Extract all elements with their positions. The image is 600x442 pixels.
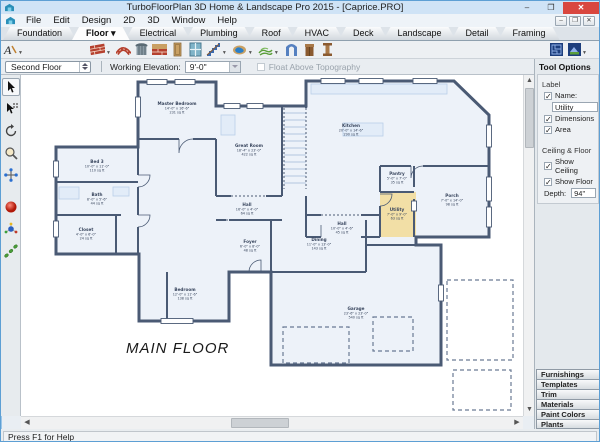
half-wall-icon[interactable] bbox=[151, 42, 169, 58]
minimize-button[interactable]: – bbox=[515, 2, 539, 14]
svg-text:143 sq ft: 143 sq ft bbox=[311, 247, 327, 251]
menu-bar: FileEditDesign2D3DWindowHelp – ❐ ✕ bbox=[1, 14, 599, 27]
status-text: Press F1 for Help bbox=[3, 431, 597, 442]
tab-hvac[interactable]: HVAC bbox=[291, 27, 343, 40]
name-label: Name: bbox=[555, 91, 577, 100]
svg-text:Foyer: Foyer bbox=[243, 239, 257, 244]
dimensions-label: Dimensions bbox=[555, 114, 594, 123]
elevation-view-icon[interactable] bbox=[565, 42, 583, 58]
select-special-icon[interactable] bbox=[2, 100, 20, 118]
menu-2d[interactable]: 2D bbox=[117, 14, 141, 27]
terrain-icon[interactable] bbox=[257, 42, 275, 58]
floor-selector[interactable]: Second Floor bbox=[5, 61, 91, 73]
svg-text:24 sq ft: 24 sq ft bbox=[80, 237, 94, 241]
menu-design[interactable]: Design bbox=[76, 14, 118, 27]
svg-text:Bath: Bath bbox=[91, 192, 102, 197]
tool-options-header: Tool Options bbox=[535, 59, 600, 74]
working-elevation-label: Working Elevation: bbox=[110, 62, 181, 72]
status-bar: Press F1 for Help bbox=[1, 429, 599, 442]
rotate-icon[interactable] bbox=[2, 122, 20, 140]
gazebo-icon[interactable] bbox=[133, 42, 151, 58]
tab-roof[interactable]: Roof bbox=[248, 27, 295, 40]
tab-bar: FoundationFloor ▾ElectricalPlumbingRoofH… bbox=[1, 27, 599, 41]
maximize-button[interactable]: ❐ bbox=[539, 2, 563, 14]
svg-text:290 sq ft: 290 sq ft bbox=[343, 133, 359, 137]
horizontal-scroll-thumb[interactable] bbox=[231, 418, 289, 428]
catalog-templates[interactable]: Templates bbox=[536, 379, 600, 389]
mdi-restore-button[interactable]: ❐ bbox=[569, 16, 581, 26]
show-ceiling-checkbox[interactable]: ✓ bbox=[544, 162, 552, 170]
floor-selector-value: Second Floor bbox=[11, 62, 62, 72]
tab-deck[interactable]: Deck bbox=[339, 27, 388, 40]
floor-toolbar: Second Floor Working Elevation: 9'-0" Fl… bbox=[1, 59, 599, 75]
name-checkbox[interactable]: ✓ bbox=[544, 92, 552, 100]
svg-text:Hall: Hall bbox=[242, 202, 252, 207]
cabinet-icon[interactable] bbox=[301, 42, 319, 58]
scroll-left-icon[interactable]: ◀ bbox=[21, 417, 33, 429]
horizontal-scrollbar[interactable]: ◀ ▶ bbox=[21, 416, 523, 429]
depth-input[interactable]: 94" bbox=[571, 188, 596, 198]
window-title: TurboFloorPlan 3D Home & Landscape Pro 2… bbox=[15, 2, 515, 13]
float-topography-checkbox[interactable] bbox=[257, 63, 265, 71]
show-floor-label: Show Floor bbox=[555, 177, 593, 186]
pool-icon[interactable] bbox=[231, 42, 249, 58]
svg-text:Pantry: Pantry bbox=[389, 171, 405, 176]
svg-text:231 sq ft: 231 sq ft bbox=[169, 111, 185, 115]
show-floor-checkbox[interactable]: ✓ bbox=[544, 178, 552, 186]
depth-label: Depth: bbox=[544, 189, 566, 198]
tab-detail[interactable]: Detail bbox=[452, 27, 503, 40]
svg-text:138 sq ft: 138 sq ft bbox=[177, 297, 193, 301]
catalog-materials[interactable]: Materials bbox=[536, 399, 600, 409]
svg-text:Kitchen: Kitchen bbox=[342, 123, 360, 128]
svg-text:48 sq ft: 48 sq ft bbox=[244, 249, 258, 253]
menu-file[interactable]: File bbox=[20, 14, 47, 27]
drawing-toolbar: A ▼ ▼ ▼ ▼ ▼ bbox=[1, 41, 599, 59]
area-checkbox[interactable]: ✓ bbox=[544, 126, 552, 134]
render-sphere-icon[interactable] bbox=[2, 198, 20, 216]
svg-text:Utility: Utility bbox=[390, 207, 405, 212]
elevation-dropdown-icon[interactable] bbox=[229, 62, 240, 72]
column-icon[interactable] bbox=[319, 42, 337, 58]
svg-text:Bed 3: Bed 3 bbox=[90, 159, 103, 164]
wall-icon[interactable] bbox=[89, 42, 107, 58]
floor-spinner[interactable] bbox=[79, 62, 90, 72]
show-ceiling-label: Show Ceiling bbox=[555, 157, 596, 175]
window-icon[interactable] bbox=[187, 42, 205, 58]
tab-floor[interactable]: Floor ▾ bbox=[72, 27, 130, 40]
arch-icon[interactable] bbox=[283, 42, 301, 58]
tab-framing[interactable]: Framing bbox=[499, 27, 560, 40]
floorplan-canvas[interactable]: Master Bedroom14'-0" x 16'-6"231 sq ftGr… bbox=[21, 75, 523, 416]
tab-electrical[interactable]: Electrical bbox=[126, 27, 191, 40]
svg-text:A: A bbox=[3, 43, 12, 57]
catalog-paint-colors[interactable]: Paint Colors bbox=[536, 409, 600, 419]
dimensions-checkbox[interactable]: ✓ bbox=[544, 115, 552, 123]
close-button[interactable]: ✕ bbox=[563, 2, 599, 14]
area-label: Area bbox=[555, 125, 571, 134]
name-input[interactable]: Utility bbox=[552, 102, 598, 112]
svg-text:422 sq ft: 422 sq ft bbox=[241, 153, 257, 157]
svg-text:Hall: Hall bbox=[337, 221, 347, 226]
svg-text:Dining: Dining bbox=[311, 237, 326, 242]
catalog-trim[interactable]: Trim bbox=[536, 389, 600, 399]
svg-text:45 sq ft: 45 sq ft bbox=[336, 231, 350, 235]
pan-icon[interactable] bbox=[2, 166, 20, 184]
door-icon[interactable] bbox=[169, 42, 187, 58]
svg-text:Master Bedroom: Master Bedroom bbox=[157, 101, 197, 106]
curved-wall-icon[interactable] bbox=[115, 42, 133, 58]
svg-text:35 sq ft: 35 sq ft bbox=[391, 181, 405, 185]
svg-text:Great Room: Great Room bbox=[235, 143, 264, 148]
tab-plumbing[interactable]: Plumbing bbox=[186, 27, 252, 40]
select-icon[interactable] bbox=[2, 78, 20, 96]
menu-help[interactable]: Help bbox=[211, 14, 243, 27]
floorplan-title: MAIN FLOOR bbox=[126, 340, 229, 357]
svg-text:63 sq ft: 63 sq ft bbox=[391, 217, 405, 221]
float-topography-label: Float Above Topography bbox=[269, 62, 361, 72]
mdi-minimize-button[interactable]: – bbox=[555, 16, 567, 26]
menu-window[interactable]: Window bbox=[166, 14, 212, 27]
title-bar: TurboFloorPlan 3D Home & Landscape Pro 2… bbox=[1, 1, 599, 14]
path-icon[interactable] bbox=[2, 242, 20, 260]
label-group-title: Label bbox=[542, 80, 596, 89]
svg-text:44 sq ft: 44 sq ft bbox=[91, 202, 105, 206]
ceiling-floor-group-title: Ceiling & Floor bbox=[542, 146, 596, 155]
vertical-scrollbar[interactable]: ▲ ▼ bbox=[523, 75, 534, 416]
svg-text:Bedroom: Bedroom bbox=[174, 287, 196, 292]
tool-palette bbox=[1, 75, 21, 416]
svg-text:540 sq ft: 540 sq ft bbox=[348, 316, 364, 320]
svg-text:Garage: Garage bbox=[348, 306, 365, 311]
svg-text:110 sq ft: 110 sq ft bbox=[89, 169, 105, 173]
svg-text:98 sq ft: 98 sq ft bbox=[446, 203, 460, 207]
walkthrough-icon[interactable] bbox=[2, 220, 20, 238]
zoom-icon[interactable] bbox=[2, 144, 20, 162]
scroll-right-icon[interactable]: ▶ bbox=[511, 417, 523, 429]
svg-text:Closet: Closet bbox=[79, 227, 94, 232]
catalog-furnishings[interactable]: Furnishings bbox=[536, 369, 600, 379]
menu-edit[interactable]: Edit bbox=[47, 14, 75, 27]
vertical-scroll-thumb[interactable] bbox=[525, 88, 534, 148]
tool-options-panel: Tool Options Label ✓ Name: Utility ✓ Dim… bbox=[534, 59, 600, 429]
tab-foundation[interactable]: Foundation bbox=[3, 27, 76, 40]
tab-landscape[interactable]: Landscape bbox=[383, 27, 455, 40]
svg-text:Porch: Porch bbox=[445, 193, 458, 198]
menu-3d[interactable]: 3D bbox=[141, 14, 165, 27]
stairs-icon[interactable] bbox=[205, 42, 223, 58]
working-elevation-field[interactable]: 9'-0" bbox=[185, 61, 241, 73]
mdi-close-button[interactable]: ✕ bbox=[583, 16, 595, 26]
document-icon bbox=[5, 16, 16, 25]
catalog-plants[interactable]: Plants bbox=[536, 419, 600, 429]
plan-view-icon[interactable] bbox=[547, 42, 565, 58]
text-tool-icon[interactable]: A bbox=[1, 42, 19, 58]
app-window: TurboFloorPlan 3D Home & Landscape Pro 2… bbox=[0, 0, 600, 442]
svg-text:64 sq ft: 64 sq ft bbox=[241, 212, 255, 216]
app-logo-icon bbox=[4, 3, 15, 12]
mdi-window-buttons: – ❐ ✕ bbox=[555, 16, 595, 26]
